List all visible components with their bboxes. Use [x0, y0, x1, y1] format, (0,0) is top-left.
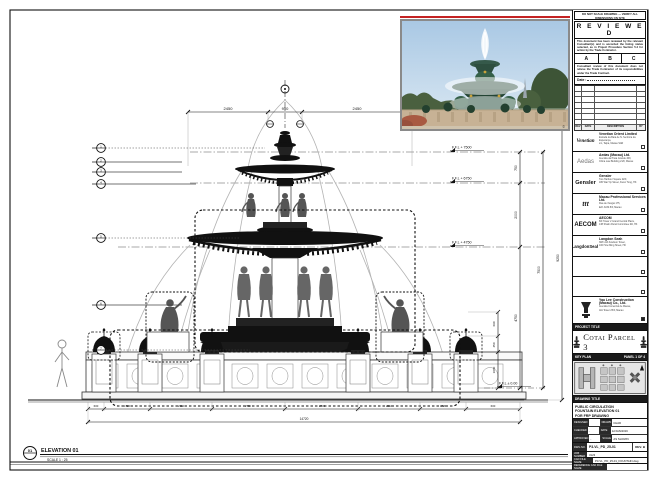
svg-text:F.F.L ± 0.00: F.F.L ± 0.00	[499, 382, 517, 386]
svg-text:690: 690	[492, 321, 496, 326]
title-block: DO NOT SCALE DRAWING — VERIFY ALL DIMENS…	[572, 10, 648, 470]
svg-text:2310: 2310	[178, 404, 185, 408]
svg-text:4750: 4750	[514, 314, 518, 322]
svg-text:2450: 2450	[224, 106, 234, 111]
svg-text:2000: 2000	[514, 211, 518, 219]
fountain-urn	[270, 131, 300, 161]
status-option-a[interactable]: A	[575, 54, 599, 63]
svg-text:450: 450	[492, 342, 496, 347]
status-option-c[interactable]: C	[622, 54, 645, 63]
consultant-row-venetian: Venetian Venetian Orient Limited Estrada…	[573, 131, 647, 152]
reference-photo: ©	[400, 19, 570, 131]
svg-text:7500: 7500	[537, 266, 541, 274]
svg-text:F.F.L + 4750: F.F.L + 4750	[452, 241, 472, 245]
svg-text:SCALE 1 : 25: SCALE 1 : 25	[47, 458, 68, 462]
consultant-checkbox[interactable]	[641, 250, 646, 255]
svg-text:2310: 2310	[386, 404, 393, 408]
drawing-title-bar: DRAWING TITLE	[573, 396, 647, 403]
reviewed-title: R E V I E W E D	[575, 22, 645, 39]
svg-text:2730: 2730	[319, 404, 326, 408]
consultant-row-gensler: Gensler Gensler Two Harbour Square 22/F,…	[573, 173, 647, 194]
svg-text:F.F.L + 7500: F.F.L + 7500	[452, 146, 472, 150]
fountain-base	[200, 332, 370, 354]
aecom-logo: AECOM	[573, 215, 598, 235]
langdonseah-logo: LangdonSeah	[573, 236, 598, 256]
top-dimension: 2450 950 2450	[186, 106, 414, 166]
contractor-checkbox[interactable]	[641, 317, 646, 322]
bottom-dimensions: 600 1720 2310 2730 2730 2310 1720 600 14…	[86, 402, 522, 424]
svg-text:2450: 2450	[353, 106, 363, 111]
stamp-paragraph-2: Consultant review of this document does …	[575, 64, 645, 75]
consultant-checkbox[interactable]	[641, 270, 646, 275]
reviewed-stamp: R E V I E W E D This document has been r…	[574, 21, 646, 85]
do-not-scale-note: DO NOT SCALE DRAWING — VERIFY ALL DIMENS…	[574, 11, 646, 20]
consultant-checkbox[interactable]	[641, 145, 646, 150]
consultant-checkbox[interactable]	[641, 290, 646, 295]
svg-text:1720: 1720	[124, 404, 131, 408]
svg-text:1720: 1720	[440, 404, 447, 408]
scale-figure	[55, 340, 69, 387]
cad-file-row: CAD FILE NAME P3-VL_PD_25-01_FOUNTAIN.dw…	[573, 458, 647, 464]
consultant-checkbox[interactable]	[641, 166, 646, 171]
consultant-checkbox[interactable]	[641, 208, 646, 213]
key-plan-bar: KEY PLAN PANEL 1 OF 4	[573, 354, 647, 361]
svg-text:2730: 2730	[245, 404, 252, 408]
fountain-statue-tier	[228, 258, 342, 332]
fountain-middle-bowl	[187, 231, 383, 258]
svg-text:600: 600	[491, 404, 496, 408]
key-plan-map	[573, 361, 647, 396]
consultant-row-aecom: AECOM AECOM 8/F Tower 2 Grand Central Pl…	[573, 215, 647, 236]
consultant-row-mps: ttt Macau Professional Services Ltd. Rua…	[573, 194, 647, 215]
drawing-sheet: 2450 950 2450 F.F.L + 7500 F.F.L + 6750 …	[0, 0, 650, 488]
stamp-paragraph-1: This document has been reviewed by the r…	[575, 39, 645, 53]
view-title-callout: 01 ELEVATION 01 SCALE 1 : 25	[24, 447, 569, 463]
svg-text:01: 01	[28, 448, 33, 453]
stamp-status-options: A B C	[575, 53, 645, 64]
consultant-row-aedas: Aedas Aedas (Macau) Ltd. Avenida da Prai…	[573, 152, 647, 173]
fields-table: DESIGNED DRAWN CHAD CHECKED - DATE 12/JA…	[573, 419, 647, 443]
dwg-number: P3-VL_PD_25-01	[587, 445, 632, 449]
fountain-finial	[266, 80, 304, 128]
revision-table: REV DATE DESCRIPTION BY	[574, 85, 646, 131]
empty-consultant-box	[573, 277, 647, 297]
fountain-icon	[640, 335, 647, 349]
consultant-row-langdonseah: LangdonSeah Langdon Seah 38/F AIA Kowloo…	[573, 236, 647, 257]
venetian-logo: Venetian	[573, 131, 598, 151]
drawing-title: PUBLIC CIRCULATION FOUNTAIN ELEVATION 01…	[573, 403, 647, 419]
svg-text:950: 950	[282, 106, 289, 111]
dwg-number-row: DWG NO. P3-VL_PD_25-01 REV. B	[573, 443, 647, 452]
revision-table-header: REV DATE DESCRIPTION BY	[575, 125, 645, 130]
yau-lee-logo	[573, 297, 598, 323]
svg-text:1060: 1060	[492, 366, 496, 373]
svg-text:ELEVATION 01: ELEVATION 01	[41, 448, 79, 454]
revision-code: REV. B	[632, 443, 647, 451]
red-markup-line	[400, 16, 570, 18]
consultant-checkbox[interactable]	[641, 229, 646, 234]
aedas-logo: Aedas	[573, 152, 598, 172]
empty-consultant-box	[573, 257, 647, 277]
svg-text:14720: 14720	[300, 417, 309, 421]
project-title-bar: PROJECT TITLE	[573, 324, 647, 331]
svg-text:750: 750	[514, 165, 518, 171]
svg-text:F.F.L + 6750: F.F.L + 6750	[452, 177, 472, 181]
svg-text:9250: 9250	[556, 254, 560, 262]
fountain-icon	[573, 335, 580, 349]
photo-watermark: ©	[562, 125, 565, 129]
gensler-logo: Gensler	[573, 173, 598, 193]
photo-image: ©	[401, 20, 569, 130]
consultant-checkbox[interactable]	[641, 187, 646, 192]
svg-text:600: 600	[94, 404, 99, 408]
status-option-b[interactable]: B	[599, 54, 623, 63]
ref-cad-file-row: REFERENCE CAD FILE NAME	[573, 464, 647, 470]
mps-logo: ttt	[573, 194, 598, 214]
project-title: Cotai Parcel 3	[573, 331, 647, 354]
stamp-date-line: Date :	[575, 76, 645, 83]
fountain-putti-tier	[0, 193, 313, 234]
contractor-row: Yau Lee Construction (Macau) Co., Ltd. A…	[573, 297, 647, 324]
